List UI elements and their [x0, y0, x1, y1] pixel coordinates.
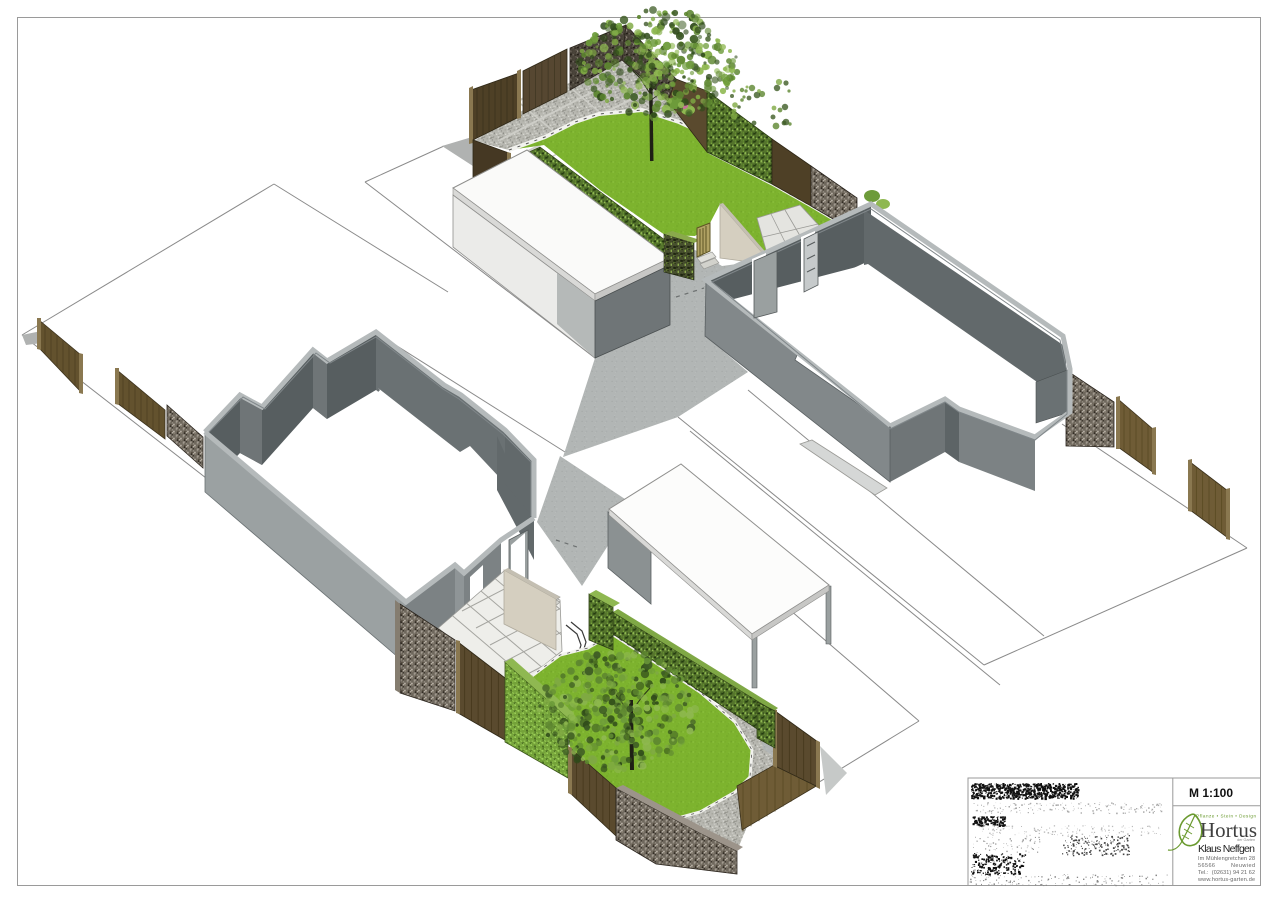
svg-text:www.hortus-garten.de: www.hortus-garten.de: [1197, 877, 1255, 883]
svg-text:Tel.: (02631) 94 21 62: Tel.: (02631) 94 21 62: [1198, 870, 1255, 876]
svg-text:der Garten: der Garten: [1237, 838, 1255, 842]
svg-text:Im Mühlengretchen 28: Im Mühlengretchen 28: [1198, 856, 1255, 862]
svg-text:M 1:100: M 1:100: [1189, 786, 1233, 800]
svg-text:Klaus Neffgen: Klaus Neffgen: [1198, 843, 1255, 855]
svg-text:56566 Neuwied: 56566 Neuwied: [1198, 863, 1255, 869]
